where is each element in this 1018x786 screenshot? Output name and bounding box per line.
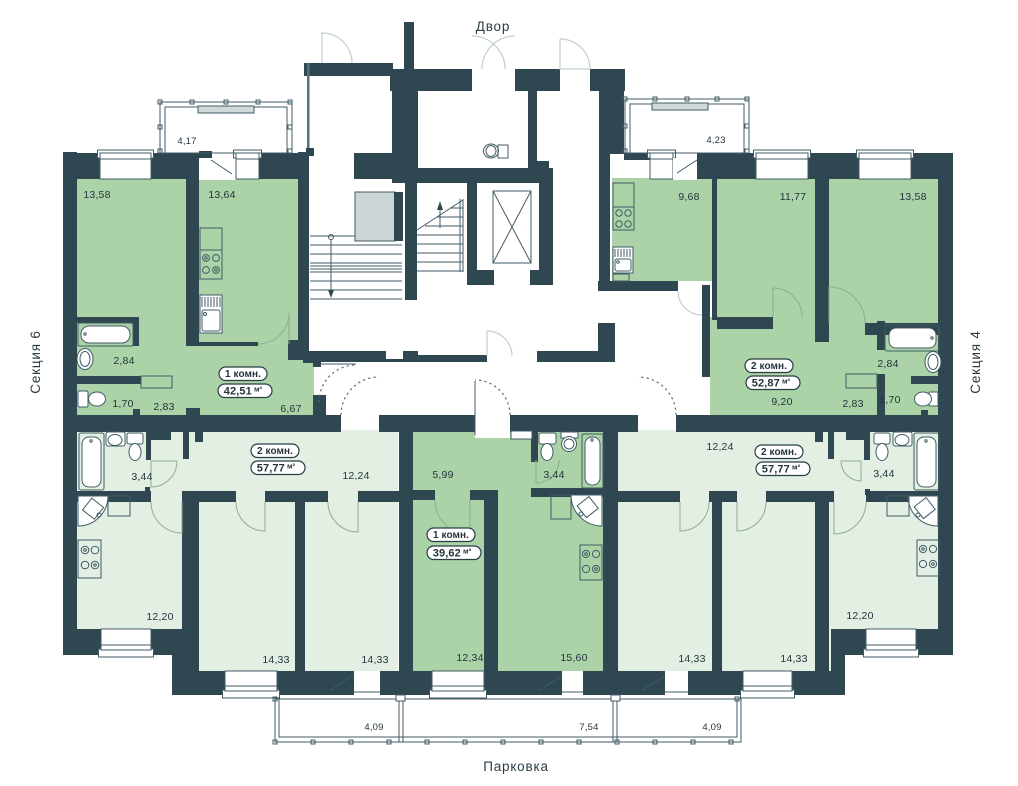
svg-text:2 комн.: 2 комн.: [257, 446, 293, 457]
svg-text:2 комн.: 2 комн.: [761, 447, 797, 458]
svg-text:13,64: 13,64: [208, 189, 235, 201]
svg-text:12,24: 12,24: [342, 470, 369, 482]
svg-text:3,44: 3,44: [131, 471, 152, 483]
svg-text:4,09: 4,09: [364, 722, 383, 733]
svg-text:6,67: 6,67: [280, 403, 301, 415]
svg-text:2,83: 2,83: [153, 401, 174, 413]
svg-text:2,84: 2,84: [113, 355, 134, 367]
svg-text:13,58: 13,58: [899, 191, 926, 203]
svg-text:12,20: 12,20: [846, 610, 873, 622]
svg-text:15,60: 15,60: [560, 652, 587, 664]
svg-text:Секция 4: Секция 4: [968, 330, 983, 393]
svg-text:5,99: 5,99: [432, 469, 453, 481]
svg-text:2,83: 2,83: [842, 398, 863, 410]
svg-text:1 комн.: 1 комн.: [225, 369, 261, 380]
svg-text:4,17: 4,17: [177, 136, 196, 147]
svg-text:2 комн.: 2 комн.: [751, 361, 787, 372]
svg-text:12,20: 12,20: [146, 611, 173, 623]
svg-text:Двор: Двор: [476, 19, 510, 34]
svg-text:4,23: 4,23: [706, 135, 725, 146]
svg-text:4,09: 4,09: [702, 722, 721, 733]
svg-text:14,33: 14,33: [678, 653, 705, 665]
svg-text:1 комн.: 1 комн.: [433, 530, 469, 541]
svg-text:9,68: 9,68: [678, 191, 699, 203]
svg-text:12,24: 12,24: [706, 441, 733, 453]
svg-text:14,33: 14,33: [361, 654, 388, 666]
svg-text:14,33: 14,33: [780, 653, 807, 665]
svg-text:13,58: 13,58: [83, 189, 110, 201]
svg-text:12,34: 12,34: [456, 652, 483, 664]
svg-text:9,20: 9,20: [771, 396, 792, 408]
svg-text:3,44: 3,44: [873, 468, 894, 480]
svg-text:3,44: 3,44: [543, 469, 564, 481]
svg-text:11,77: 11,77: [780, 191, 807, 203]
svg-text:2,84: 2,84: [877, 358, 898, 370]
svg-text:14,33: 14,33: [262, 654, 289, 666]
svg-text:1,70: 1,70: [879, 394, 900, 406]
svg-text:Секция 6: Секция 6: [28, 330, 43, 393]
svg-text:7,54: 7,54: [579, 722, 598, 733]
svg-text:Парковка: Парковка: [483, 759, 549, 774]
svg-text:1,70: 1,70: [112, 398, 133, 410]
